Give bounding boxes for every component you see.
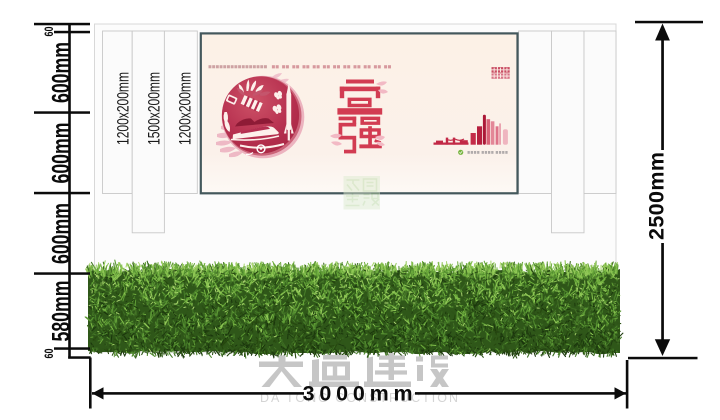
svg-text:580mm: 580mm: [48, 281, 76, 342]
svg-text:1500x200mm: 1500x200mm: [146, 72, 164, 145]
svg-text:600mm: 600mm: [48, 42, 76, 103]
svg-text:1200x200mm: 1200x200mm: [177, 72, 195, 145]
svg-text:2500mm: 2500mm: [645, 152, 669, 240]
svg-text:600mm: 600mm: [48, 123, 76, 184]
svg-text:60: 60: [44, 349, 56, 359]
svg-text:3000mm: 3000mm: [303, 381, 418, 405]
svg-text:60: 60: [44, 27, 56, 37]
svg-text:1200x200mm: 1200x200mm: [115, 72, 133, 145]
svg-text:600mm: 600mm: [48, 203, 76, 264]
